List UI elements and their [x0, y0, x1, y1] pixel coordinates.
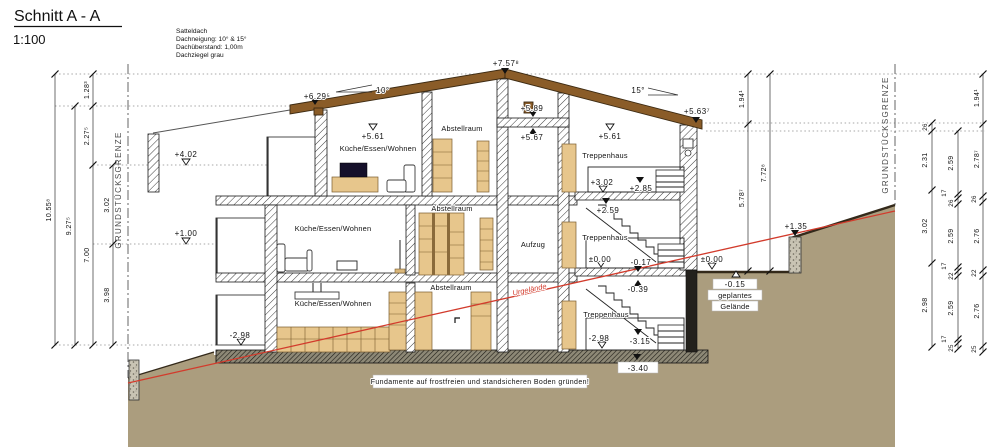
planned-ground-label-2: Gelände: [720, 302, 749, 311]
wall-top-left: [315, 110, 327, 196]
dim-1-94-a: 1.94¹: [739, 90, 746, 108]
level-lift-top: +5.89: [521, 104, 544, 113]
planned-ground-label-1: geplantes: [718, 291, 752, 300]
level-m315: -3.15: [630, 337, 651, 346]
section-drawing-sheet: GRUNDSTÜCKSGRENZE GRUNDSTÜCKSGRENZE 10.5…: [0, 0, 1000, 447]
dim-3-02: 3.02: [104, 197, 111, 212]
slope-symbol-right: [648, 88, 678, 95]
dim-3-98: 3.98: [104, 287, 111, 302]
wardrobe-post-1: [432, 213, 435, 275]
stair-steps-ug: [658, 325, 684, 350]
drawing-header: Schnitt A - A 1:100 Satteldach Dachneigu…: [13, 8, 247, 59]
dim-1-28: 1.28³: [84, 81, 91, 99]
door-og1: [562, 222, 576, 268]
retaining-wall-right: [789, 237, 801, 273]
dim-a-302: 3.02: [922, 218, 929, 233]
level-m039: -0.39: [628, 285, 649, 294]
dim-c-25: 25: [971, 345, 978, 353]
room-kueche-og2: Küche/Essen/Wohnen: [340, 144, 417, 153]
wardrobe-post-2: [447, 213, 450, 275]
dim-a-298: 2.98: [922, 297, 929, 312]
slope-symbol-left: [336, 85, 372, 92]
storage-cabinet-ug-1: [415, 292, 432, 350]
dim-c-276a: 2.76: [974, 228, 981, 243]
balcony-middle: [216, 218, 267, 275]
dim-a-231: 2.31: [922, 152, 929, 167]
level-m017: -0.17: [631, 258, 652, 267]
slab-landing-lower: [575, 268, 686, 276]
room-abstell-og2: Abstellraum: [441, 124, 482, 133]
wall-divider-ug: [406, 283, 415, 352]
drawing-title: Schnitt A - A: [14, 8, 101, 25]
armchair-seat: [387, 180, 406, 192]
level-302: +3.02: [591, 178, 614, 187]
dim-10-55: 10.55⁸: [46, 199, 53, 222]
wall-exterior-left: [265, 205, 277, 352]
dim-b-259b: 2.59: [948, 228, 955, 243]
foundation-note: Fundamente auf frostfreien und standsich…: [371, 375, 590, 388]
rafter-stub: [314, 108, 323, 115]
dimension-labels-left: 10.55⁸ 9.27⁵ 1.28³ 2.27⁵ 7.00 3.02 3.98: [46, 81, 111, 303]
sideboard: [332, 177, 378, 192]
vent-box: [683, 139, 693, 148]
dim-2-27: 2.27⁵: [84, 127, 91, 146]
sofa-seat: [285, 258, 309, 271]
level-eave-right: +5.63⁷: [684, 107, 710, 116]
retaining-wall-left: [129, 360, 139, 400]
dim-c-194: 1.94¹: [974, 89, 981, 107]
room-treppe-og1: Treppenhaus: [582, 233, 628, 242]
room-treppe-ug: Treppenhaus: [583, 310, 629, 319]
dim-c-276b: 2.76: [974, 303, 981, 318]
spec-line-3: Dachüberstand: 1,00m: [176, 44, 243, 51]
dim-5-78: 5.78⁷: [739, 189, 746, 207]
shelf-og2: [477, 141, 489, 192]
wardrobe-og1: [419, 213, 464, 275]
dimension-labels-right-inner: 1.94¹ 5.78⁷ 7.72⁸: [739, 90, 768, 207]
level-zero-stair: ±0.00: [589, 255, 612, 264]
dim-c-26: 26: [971, 195, 978, 203]
roof-spec-block: Satteldach Dachneigung: 10° & 15° Dachüb…: [176, 28, 247, 59]
section-a-a-drawing: GRUNDSTÜCKSGRENZE GRUNDSTÜCKSGRENZE 10.5…: [0, 0, 1000, 447]
kitchen-counter: [277, 327, 390, 352]
room-kueche-og1: Küche/Essen/Wohnen: [295, 224, 372, 233]
balcony-top: [267, 137, 318, 196]
door-ug: [562, 301, 576, 349]
lift-shaft-left: [497, 127, 508, 352]
storage-cabinet-ug-2: [471, 292, 491, 350]
dim-b-17c: 17: [941, 335, 948, 343]
level-285: +2.85: [630, 184, 653, 193]
level-100: +1.00: [175, 229, 198, 238]
floor-lamp-base: [395, 269, 405, 273]
level-298-terrace: -2.98: [230, 331, 251, 340]
dim-9-27: 9.27⁵: [66, 217, 73, 236]
dim-b-26: 26: [948, 199, 955, 207]
dim-b-25: 25: [948, 344, 955, 352]
level-og2-right: +5.61: [599, 132, 622, 141]
vent-circle: [685, 150, 691, 156]
tv: [340, 163, 367, 177]
room-treppe-og2: Treppenhaus: [582, 151, 628, 160]
slab-og2: [216, 196, 577, 205]
dim-7-00: 7.00: [84, 247, 91, 262]
dim-c-22: 22: [971, 269, 978, 277]
wall-exterior-right-basement: [686, 270, 697, 352]
level-135: +1.35: [785, 222, 808, 231]
extractor-hood: [295, 292, 339, 299]
level-m340: -3.40: [628, 364, 649, 373]
room-aufzug: Aufzug: [521, 240, 545, 249]
dim-b-259a: 2.59: [948, 155, 955, 170]
spec-line-4: Dachziegel grau: [176, 52, 224, 59]
dim-b-22: 22: [948, 272, 955, 280]
level-zero-out: ±0.00: [701, 255, 724, 264]
room-abstell-ug: Abstellraum: [430, 283, 471, 292]
level-eave-left: +6.29⁵: [304, 92, 331, 101]
dim-c-278: 2.78⁷: [974, 150, 981, 168]
side-canopy-line: [153, 110, 290, 133]
room-kueche-ug: Küche/Essen/Wohnen: [295, 299, 372, 308]
lift-roof-slab: [497, 118, 569, 127]
level-m015: -0.15: [725, 280, 746, 289]
dim-b-17a: 17: [941, 189, 948, 197]
spec-line-2: Dachneigung: 10° & 15°: [176, 35, 247, 43]
slope-left-label: 10°: [376, 86, 390, 95]
dim-b-259c: 2.59: [948, 300, 955, 315]
slab-landing-upper: [575, 192, 686, 200]
dim-b-17b: 17: [941, 262, 948, 270]
room-abstell-og1: Abstellraum: [431, 204, 472, 213]
stair-doors: [562, 144, 576, 349]
stair-steps-og2: [656, 170, 684, 192]
level-298-stair: -2.98: [589, 334, 610, 343]
dim-7-72: 7.72⁸: [761, 164, 768, 183]
dim-a-26: 26: [922, 123, 929, 131]
door-og2: [562, 144, 576, 192]
level-og2-left: +5.61: [362, 132, 385, 141]
spec-line-1: Satteldach: [176, 28, 207, 35]
foundation-note-text: Fundamente auf frostfreien und standsich…: [371, 379, 590, 386]
sofa-back: [277, 244, 285, 272]
sofa-arm: [307, 250, 312, 271]
level-ridge: +7.57⁸: [493, 59, 520, 68]
drawing-scale: 1:100: [13, 32, 46, 47]
level-259: +2.59: [597, 206, 620, 215]
cabinet-og2: [433, 139, 452, 192]
side-screen-post: [148, 134, 159, 192]
level-lift-bottom: +5.67: [521, 133, 544, 142]
wall-divider-og1: [406, 205, 415, 275]
wall-top-divider: [422, 92, 432, 196]
slope-right-label: 15°: [631, 86, 645, 95]
dimension-labels-right-outer: 26 2.31 3.02 2.98 2.59 17 26 2.59 17 22 …: [922, 89, 981, 353]
level-402: +4.02: [175, 150, 198, 159]
property-label-left: GRUNDSTÜCKSGRENZE: [114, 131, 123, 248]
property-label-right: GRUNDSTÜCKSGRENZE: [881, 76, 890, 193]
